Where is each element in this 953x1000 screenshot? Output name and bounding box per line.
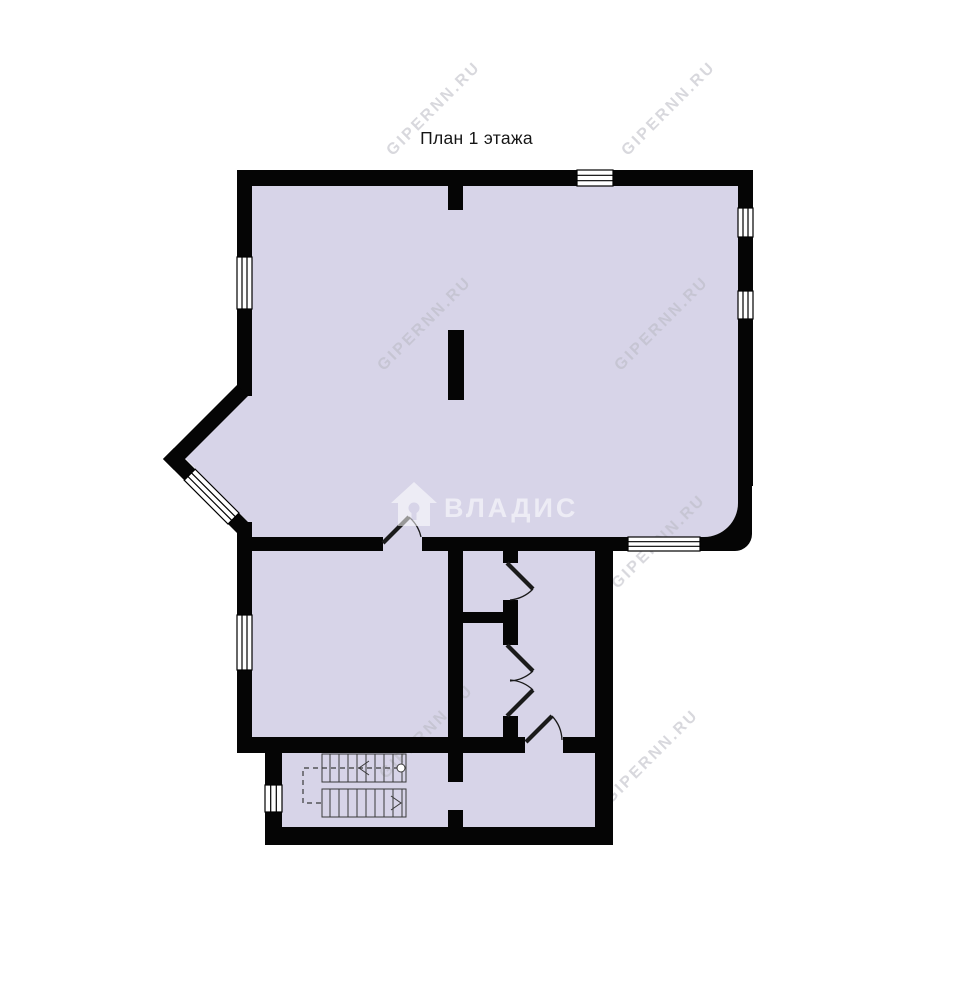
window	[628, 537, 700, 551]
wall-corridor-chunk-3	[503, 716, 518, 737]
wall-corridor-right	[595, 537, 613, 845]
wall-corridor-chunk-1	[503, 551, 518, 563]
stair-start-marker	[397, 764, 405, 772]
window	[577, 170, 613, 186]
wall-top	[237, 170, 753, 186]
window	[738, 208, 753, 237]
agency-name: ВЛАДИС	[444, 493, 578, 523]
wall-bottom-band-left	[237, 737, 525, 753]
window	[237, 615, 252, 670]
watermark-text: GIPERNN.RU	[601, 706, 702, 807]
window	[738, 291, 753, 319]
wall-bottom-band-right	[563, 737, 613, 753]
floor-plan-drawing: GIPERNN.RU GIPERNN.RU GIPERNN.RU GIPERNN…	[0, 0, 953, 1000]
wall-strip-bottom	[265, 827, 613, 845]
wall-mainroom-bottom-left	[237, 537, 383, 551]
wall-interior-vertical	[448, 537, 463, 753]
window	[237, 257, 252, 309]
wall-closet-divider	[463, 612, 503, 623]
wall-strip-divider-top	[448, 753, 463, 782]
wall-stub-middle	[448, 330, 464, 400]
window	[265, 785, 282, 812]
floor-plan-page: План 1 этажа GIPERNN.RU GIPERNN.RU GIPER…	[0, 0, 953, 1000]
room-strip-floor	[270, 745, 605, 841]
watermark-text: GIPERNN.RU	[383, 58, 484, 159]
wall-stub-top	[448, 186, 463, 210]
wall-corridor-chunk-2	[503, 600, 518, 645]
watermark-text: GIPERNN.RU	[618, 58, 719, 159]
wall-strip-divider-bottom	[448, 810, 463, 827]
